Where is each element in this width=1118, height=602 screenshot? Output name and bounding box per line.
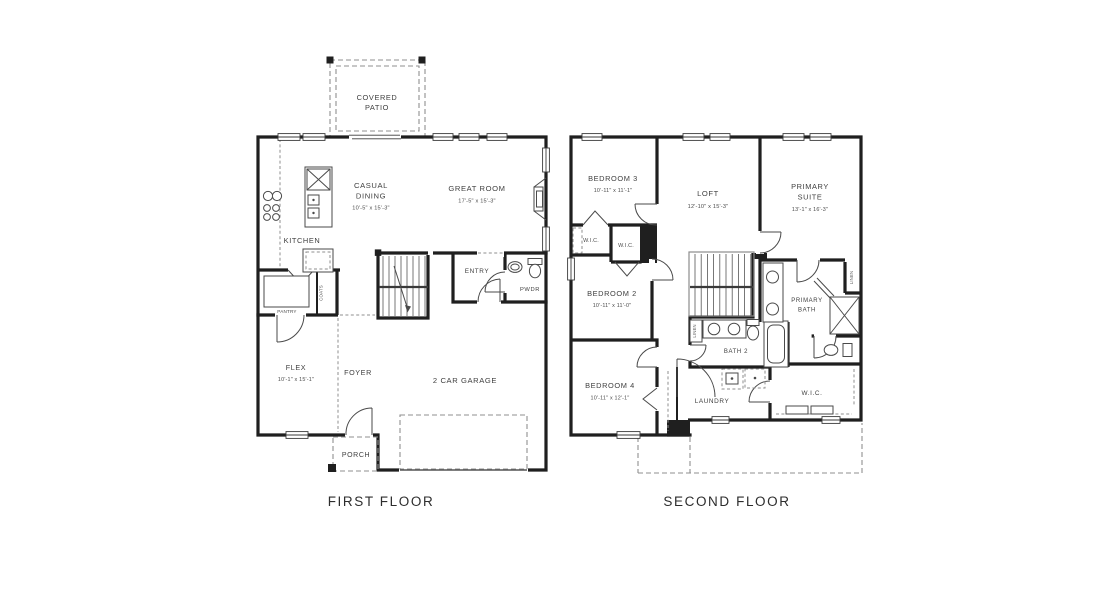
room-dims-bedroom3: 10'-11" x 11'-1" (594, 188, 633, 194)
fireplace (534, 178, 546, 220)
room-dims-primary-suite: 13'-1" x 16'-3" (792, 207, 828, 213)
room-label-wic-primary: W.I.C. (802, 390, 823, 397)
room-dims-bedroom2: 10'-11" x 11'-0" (593, 303, 632, 309)
room-label-linen-bath2: LINEN (692, 324, 697, 337)
room-label-covered-patio-2: PATIO (365, 103, 389, 112)
second-floor-plan: BEDROOM 3 10'-11" x 11'-1" LOFT 12'-10" … (568, 134, 863, 509)
room-label-garage: 2 CAR GARAGE (433, 376, 497, 385)
room-label-coats: COATS (319, 285, 324, 301)
room-label-great-room: GREAT ROOM (448, 184, 505, 193)
floorplan-page: COVERED PATIO CASUAL DINING 10'-5" x 15'… (0, 0, 1118, 602)
room-label-wic2: W.I.C. (618, 243, 634, 249)
room-label-bedroom4: BEDROOM 4 (585, 381, 635, 390)
bath2-toilet (747, 326, 758, 340)
room-label-laundry: LAUNDRY (695, 398, 730, 405)
room-label-entry: ENTRY (465, 268, 490, 275)
room-dims-casual-dining: 10'-5" x 15'-3" (352, 206, 389, 212)
room-label-primary-suite: PRIMARY (791, 182, 829, 191)
powder-toilet (529, 264, 540, 278)
room-label-covered-patio: COVERED (357, 93, 398, 102)
room-label-primary-bath: PRIMARY (791, 298, 822, 304)
laundry-appliances (722, 369, 765, 389)
room-label-pantry: PANTRY (277, 309, 296, 314)
room-label-kitchen: KITCHEN (284, 236, 321, 245)
room-label-bedroom3: BEDROOM 3 (588, 174, 638, 183)
first-floor-title: FIRST FLOOR (328, 494, 435, 509)
room-label-bedroom2: BEDROOM 2 (587, 289, 637, 298)
room-label-bath2: BATH 2 (724, 349, 748, 355)
patio-slider-door (349, 133, 401, 141)
powder-room-fixtures (508, 259, 542, 278)
room-label-porch: PORCH (342, 452, 370, 459)
room-dims-flex: 10'-1" x 15'-1" (278, 377, 314, 383)
stairs-first-floor (375, 249, 428, 316)
stairs-second-floor (689, 252, 754, 316)
room-label-casual-dining-2: DINING (356, 192, 386, 201)
room-label-primary-suite-2: SUITE (798, 193, 823, 202)
room-label-flex: FLEX (286, 363, 306, 372)
room-label-foyer: FOYER (344, 368, 372, 377)
garage-door (400, 415, 527, 470)
room-dims-great-room: 17'-5" x 15'-3" (458, 199, 495, 205)
room-label-casual-dining: CASUAL (354, 181, 388, 190)
room-dims-bedroom4: 10'-11" x 12'-1" (591, 396, 630, 402)
room-dims-loft: 12'-10" x 15'-3" (688, 204, 729, 210)
room-label-powder: PWDR (520, 287, 540, 293)
room-label-wic1: W.I.C. (583, 238, 599, 244)
first-floor-doors (277, 270, 505, 435)
bath2-fixtures (690, 320, 788, 368)
floorplan-drawing: COVERED PATIO CASUAL DINING 10'-5" x 15'… (0, 0, 1118, 602)
pantry-shelves (264, 276, 309, 307)
room-label-primary-bath-2: BATH (798, 308, 816, 314)
room-label-linen-primary: LINEN (849, 271, 854, 284)
room-label-loft: LOFT (697, 189, 719, 198)
primary-toilet (824, 345, 838, 356)
first-floor-plan: COVERED PATIO CASUAL DINING 10'-5" x 15'… (256, 57, 549, 510)
second-floor-title: SECOND FLOOR (663, 494, 790, 509)
